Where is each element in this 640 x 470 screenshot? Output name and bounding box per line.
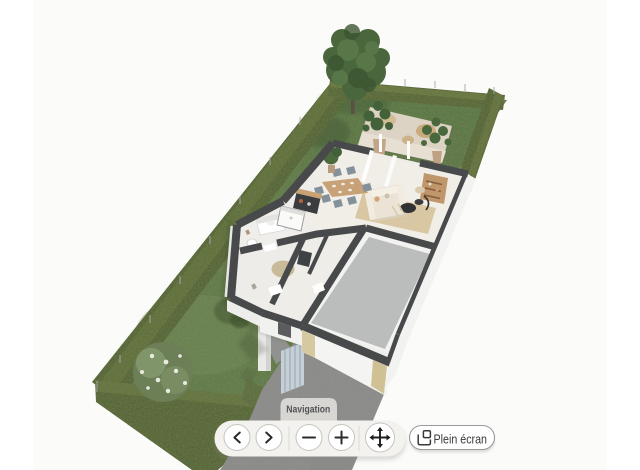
svg-text:Navigation: Navigation: [286, 405, 330, 416]
svg-text:Plein écran: Plein écran: [434, 432, 488, 447]
